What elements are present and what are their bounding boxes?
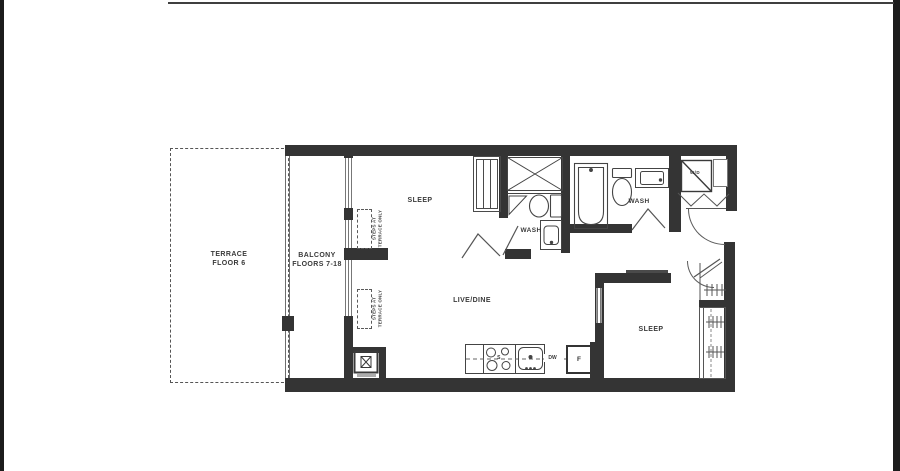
bedroom1-closet-icon [474,157,501,212]
kitchen-sink-icon [519,348,543,370]
bath2-door-icon [632,209,665,230]
scan-border-left [0,0,4,471]
floor-plan-scan: F TERRACE FLOOR 6 BALCONY FLOORS 7-18 SL… [0,0,900,471]
entry-door-arc [688,209,725,245]
wall-kitchen-end [590,342,604,378]
shower-icon [508,158,563,215]
steps-outline-lower [357,289,372,329]
toilet-icon [530,195,562,217]
scan-border-right [893,0,900,471]
bedroom1-label: SLEEP [370,197,470,206]
washer-dryer-icon [682,161,712,192]
living-label: LIVE/DINE [422,297,522,306]
closet-wardrobe-icon [700,308,726,379]
steps-note-line2: TERRACE ONLY [377,286,383,332]
balcony-pillar [282,316,294,331]
balcony-label-line1: BALCONY [267,252,367,261]
wall-bedroom1-right [499,155,508,218]
dishwasher-label: DW [544,354,561,362]
balcony-label: BALCONY FLOORS 7-18 [267,252,367,270]
wall-hall-stub [505,249,531,259]
bifold-doors-icon [678,193,729,209]
steps-note-lower: STEPS AT TERRACE ONLY [372,286,383,332]
steps-note-line2: TERRACE ONLY [377,206,383,252]
wall-closet-divider [699,300,726,307]
terrace-label-line2: FLOOR 6 [179,260,279,269]
wall-laundry-left [669,145,681,232]
steps-outline-upper [357,209,372,249]
mech-unit-icon [355,352,378,373]
fridge-label: F [577,356,581,363]
terrace-label: TERRACE FLOOR 6 [179,251,279,269]
wall-balcony-seg3 [344,316,353,351]
bedroom2-door-arc [687,261,714,288]
steps-note-upper: STEPS AT TERRACE ONLY [372,206,383,252]
terrace-label-line1: TERRACE [179,251,279,260]
wall-bath-divider [561,155,570,253]
fixtures-overlay [0,0,900,471]
fridge: F [566,345,592,374]
sink-icon [636,169,669,188]
entry-niche [713,159,728,187]
bedroom2-label: SLEEP [601,326,701,335]
mech-caption-smudge [357,374,376,377]
wall-bath2-bottom [565,224,632,233]
bath1-label: WASH [501,227,561,235]
balcony-label-line2: FLOORS 7-18 [267,261,367,270]
laundry-label: W/D [682,170,708,176]
wall-mech-right [379,347,386,378]
wall-right-lower [724,242,735,392]
wall-bottom [285,378,735,392]
stove-label: S [494,355,504,361]
scan-line-top [168,2,894,4]
window-glazing-icon [346,158,352,316]
wall-balcony-seg2 [344,208,353,220]
bedroom1-door-icon [462,234,500,258]
bath2-label: WASH [609,198,669,206]
wall-bedroom2-top [595,273,671,283]
bedroom2-header-line [626,270,668,273]
wall-balcony-seg1 [344,145,353,158]
bathtub-icon [575,164,608,229]
